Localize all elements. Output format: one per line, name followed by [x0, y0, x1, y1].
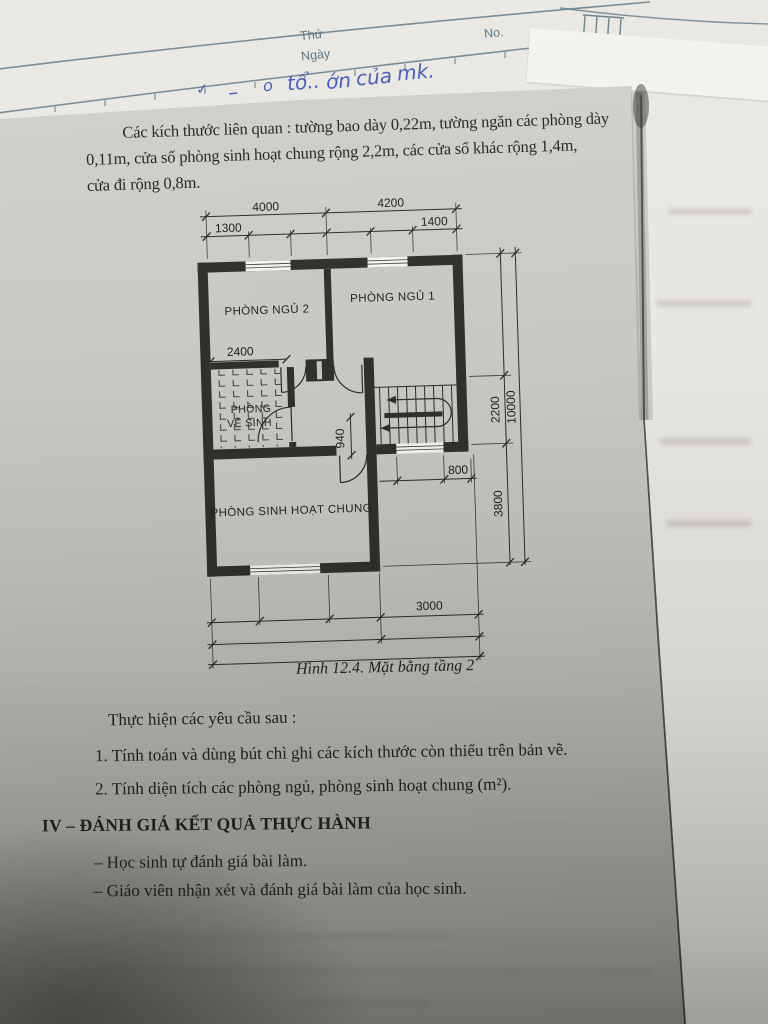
- intro-paragraph: Các kích thước liên quan : tường bao dày…: [85, 105, 611, 199]
- door-jamb-gap: [317, 361, 323, 379]
- dim-right-lower: 3800: [491, 490, 506, 517]
- page-photo: Thứ Ngày No. ✓ – o tổ.. ớn của mk. Các k…: [0, 0, 768, 1024]
- bleed-through-smudge: [660, 438, 752, 445]
- room-label-bedroom1: PHÒNG NGỦ 1: [350, 289, 435, 305]
- room-label-bathroom-1: PHÒNG: [231, 402, 272, 416]
- dim-hall-width: 940: [333, 428, 348, 449]
- dim-bedroom2-inner: 2400: [227, 344, 254, 359]
- tasks-intro: Thực hiện các yêu cầu sau :: [108, 708, 297, 731]
- dim-top-left: 4000: [252, 199, 279, 214]
- dim-right-mid: 2200: [488, 396, 503, 423]
- section-heading: IV – ĐÁNH GIÁ KẾT QUẢ THỰC HÀNH: [42, 813, 371, 837]
- dim-sub-left: 1300: [215, 221, 242, 236]
- dim-sub-right: 1400: [421, 214, 448, 229]
- dim-right-total: 10000: [504, 390, 519, 424]
- bleed-through-smudge: [666, 520, 752, 527]
- bleed-through-smudge: [95, 968, 655, 976]
- room-label-bathroom-2: VỆ SINH: [227, 416, 272, 430]
- bleed-through-smudge: [656, 300, 752, 307]
- room-label-bedroom2: PHÒNG NGỦ 2: [224, 302, 309, 318]
- dim-bottom-span: 3000: [416, 598, 443, 613]
- evaluation-item-1: – Học sinh tự đánh giá bài làm.: [94, 851, 307, 873]
- bleed-through-smudge: [300, 1000, 430, 1007]
- figure-caption: Hình 12.4. Mặt bằng tầng 2: [296, 657, 475, 679]
- dim-stair-landing: 800: [448, 463, 469, 478]
- floor-plan: 4000 4200 1300 1400 2400 940 800 2200 38…: [184, 191, 595, 681]
- dim-top-right: 4200: [377, 195, 404, 210]
- evaluation-item-2: – Giáo viên nhận xét và đánh giá bài làm…: [94, 879, 467, 902]
- bleed-through-smudge: [668, 208, 752, 215]
- bleed-through-smudge: [150, 933, 450, 941]
